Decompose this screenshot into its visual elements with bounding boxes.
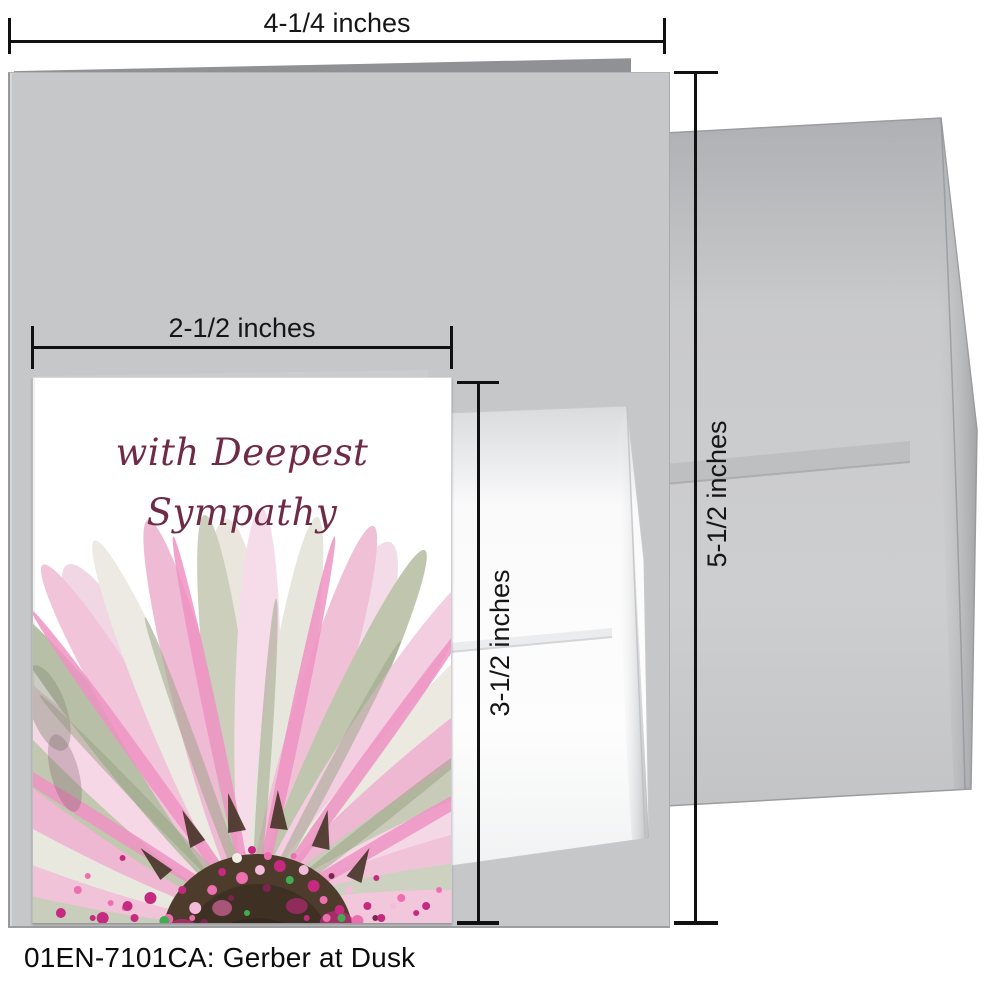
dimension-tick [457,381,499,384]
dimension-line [694,71,697,925]
open-card-fold-edge [14,57,631,73]
product-caption: 01EN-7101CA: Gerber at Dusk [24,942,415,974]
dimension-line [477,381,480,925]
dimension-line [8,40,666,43]
dimension-line [31,346,453,349]
dimension-tick [8,18,11,54]
dimension-envelope-height-label: 5-1/2 inches [702,394,732,594]
dimension-front-width-label: 2-1/2 inches [31,313,453,343]
dimension-tick [450,326,453,369]
dimension-open-width-label: 4-1/4 inches [8,8,666,38]
card-message: with Deepest Sympathy [33,423,451,543]
product-image: with Deepest Sympathy 4-1/4 inches 2-1/2… [0,0,984,984]
dimension-tick [31,326,34,369]
dimension-tick [674,921,718,925]
dimension-tick [457,921,499,925]
dimension-front-height-label: 3-1/2 inches [485,543,515,743]
card-front: with Deepest Sympathy [32,377,452,923]
dimension-tick [663,18,666,54]
dimension-tick [674,71,718,74]
